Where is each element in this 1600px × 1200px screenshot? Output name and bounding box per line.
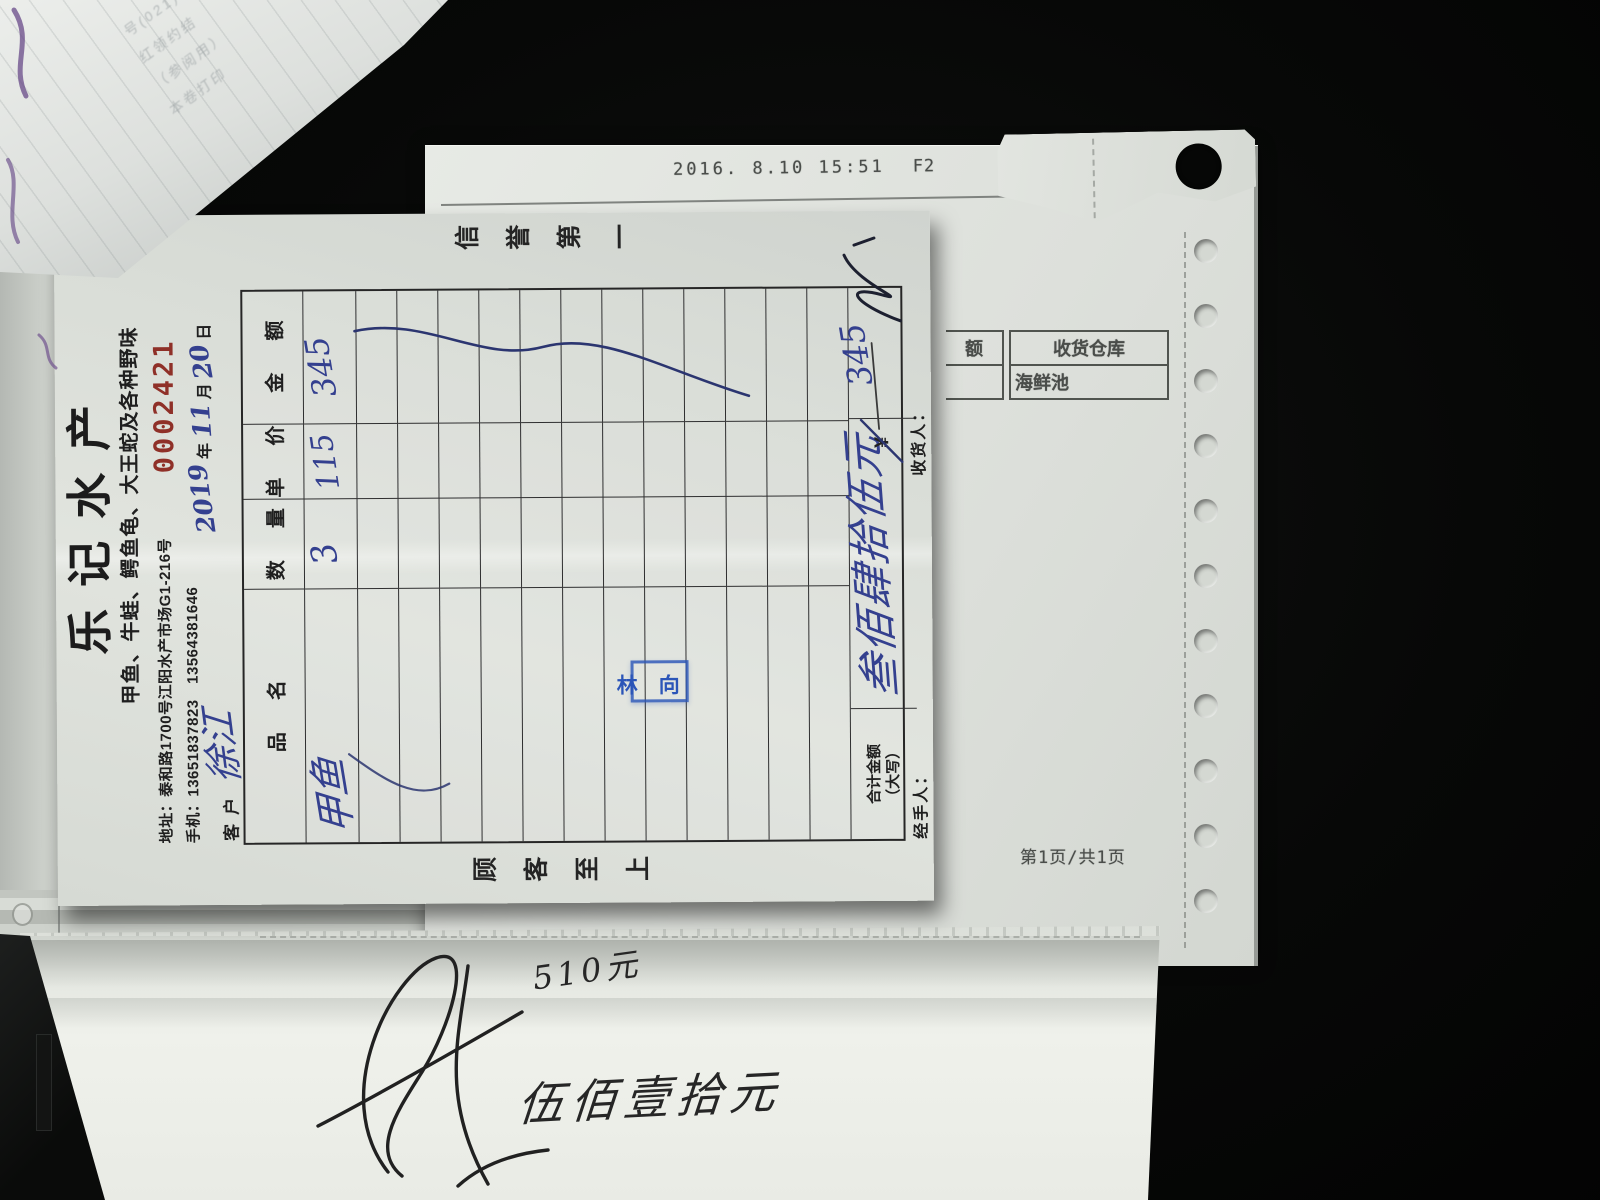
tractor-hole — [1194, 629, 1218, 653]
serial-number: 0002421 — [149, 338, 181, 473]
items-table: 品名 数量 单价 金额 甲鱼 3 115 345 合计金额 （大写） — [240, 286, 905, 845]
shop-contact: 地址：泰和路1700号江阳水产市场G1-216号 手机：13651837823 … — [152, 538, 208, 844]
tractor-hole — [1194, 369, 1218, 393]
stamp-char-xiang: 向 — [659, 669, 680, 699]
handwritten-day: 20 — [184, 342, 219, 381]
tractor-hole — [1194, 889, 1218, 913]
handwritten-price: 115 — [304, 431, 347, 493]
table-row — [478, 290, 522, 841]
handler-label: 经手人： — [907, 767, 931, 839]
mode-code: F2 — [913, 156, 936, 176]
amount-col-header: 额 — [946, 332, 1002, 366]
device-edge-detail — [36, 1034, 52, 1131]
tractor-hole — [1194, 434, 1218, 458]
tractor-hole — [1194, 824, 1218, 848]
handwritten-amount: 345 — [297, 334, 344, 400]
warehouse-header: 收货仓库 — [1011, 332, 1167, 366]
phone-line: 手机：13651837823 13564381646 — [179, 538, 208, 844]
tractor-hole — [1194, 499, 1218, 523]
cell-item: 甲鱼 — [305, 589, 359, 842]
binder-hole — [1175, 143, 1222, 190]
amount-column-fragment: 额 — [946, 330, 1004, 400]
year-label: 年 — [197, 443, 214, 459]
tractor-hole — [1194, 759, 1218, 783]
total-amount-cell: ¥ 345 — [848, 286, 915, 419]
handwritten-item-name: 甲鱼 — [295, 754, 365, 836]
shadow-band — [20, 998, 1178, 1028]
handwritten-customer-name: 徐江 — [186, 707, 250, 785]
tractor-hole — [1194, 694, 1218, 718]
punch-hole-mark — [12, 903, 33, 926]
table-row — [560, 290, 604, 841]
slogan-customer-first: 顾客至上 — [472, 852, 676, 889]
phone-label: 手机： — [185, 797, 202, 844]
warehouse-table: 额 收货仓库 海鲜池 — [946, 330, 1169, 400]
tractor-hole — [1194, 304, 1218, 328]
table-row — [355, 291, 399, 842]
table-row — [601, 289, 645, 840]
header-amount: 金额 — [242, 289, 303, 424]
table-row: 甲鱼 3 115 345 — [302, 291, 358, 842]
address-label: 地址： — [158, 797, 175, 844]
handwritten-amount-words: 伍佰壹拾元 — [515, 1055, 785, 1135]
table-row — [765, 288, 809, 839]
receipt-paper: 乐记水产 甲鱼、牛蛙、鳄鱼龟、大王蛇及各种野味 地址：泰和路1700号江阳水产市… — [54, 211, 934, 906]
table-row — [683, 289, 727, 840]
amount-col-empty — [946, 366, 1002, 398]
shop-subtitle: 甲鱼、牛蛙、鳄鱼龟、大王蛇及各种野味 — [112, 275, 144, 755]
day-label: 日 — [196, 324, 213, 340]
perforation-line — [1184, 232, 1186, 948]
warehouse-value: 海鲜池 — [1011, 366, 1167, 398]
slogan-reputation-first: 信誉第一 — [454, 220, 658, 257]
header-qty: 数量 — [244, 499, 305, 589]
bottom-sheet: 510元 伍佰壹拾元 — [20, 926, 1178, 1200]
total-row: 合计金额 （大写） 叁佰肆拾伍元 ¥ 345 — [847, 288, 917, 839]
paper-edge-tick — [58, 901, 60, 937]
table-row — [519, 290, 563, 841]
currency-symbol: ¥ — [871, 437, 894, 448]
page-number: 第1页/共1页 — [1020, 843, 1126, 868]
warehouse-column: 收货仓库 海鲜池 — [1009, 330, 1169, 400]
table-row — [642, 289, 686, 840]
handwritten-qty: 3 — [303, 539, 347, 569]
table-row — [437, 290, 481, 841]
address-value: 泰和路1700号江阳水产市场G1-216号 — [157, 538, 176, 797]
cell-amount: 345 — [303, 289, 356, 424]
cell-qty: 3 — [305, 499, 358, 589]
header-item: 品名 — [244, 589, 306, 842]
name-stamp: 林 向 — [615, 660, 689, 706]
tractor-hole — [1194, 239, 1218, 263]
timestamp-text: 2016. 8.10 15:51 — [673, 157, 885, 180]
tractor-hole — [1194, 564, 1218, 588]
stamp-char-lin: 林 — [617, 669, 638, 699]
table-row — [396, 291, 440, 842]
header-price: 单价 — [243, 424, 303, 499]
handwritten-year: 2019 — [183, 462, 222, 535]
perforation-line — [1092, 139, 1096, 229]
customer-label: 客户 — [217, 789, 242, 841]
cell-price: 115 — [304, 424, 356, 499]
date-line: 2019 年 11 月 20 日 — [186, 324, 216, 534]
printed-timestamp: 2016. 8.10 15:51F2 — [673, 156, 936, 180]
paper-edge-line — [441, 196, 1011, 206]
handwritten-month: 11 — [186, 403, 218, 440]
address-line: 地址：泰和路1700号江阳水产市场G1-216号 — [152, 538, 181, 844]
month-label: 月 — [197, 383, 214, 399]
receiver-label: 收货人： — [905, 404, 929, 476]
table-row — [724, 289, 768, 840]
